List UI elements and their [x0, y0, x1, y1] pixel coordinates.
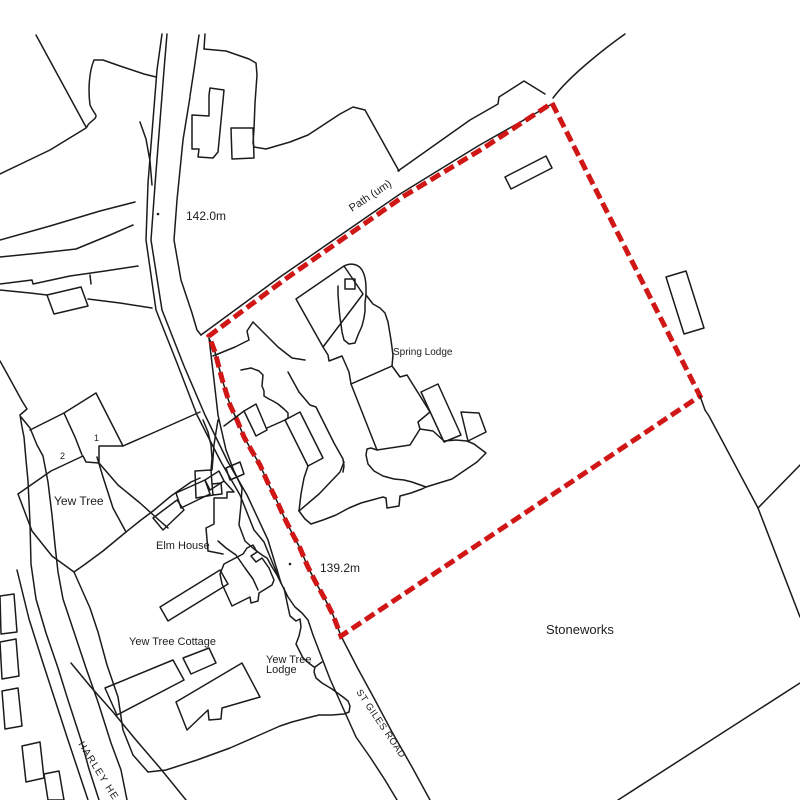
svg-text:1: 1 — [94, 433, 99, 443]
svg-text:ST GILES ROAD: ST GILES ROAD — [354, 688, 408, 761]
svg-text:142.0m: 142.0m — [186, 209, 226, 223]
svg-text:2: 2 — [60, 451, 65, 461]
svg-text:Lodge: Lodge — [266, 664, 297, 676]
svg-text:Stoneworks: Stoneworks — [546, 622, 614, 637]
svg-text:Elm House: Elm House — [156, 540, 210, 552]
svg-text:139.2m: 139.2m — [320, 561, 360, 575]
svg-text:Yew Tree: Yew Tree — [54, 494, 104, 508]
svg-text:Yew Tree Cottage: Yew Tree Cottage — [129, 636, 216, 648]
svg-text:Path (um): Path (um) — [347, 178, 394, 215]
svg-text:Spring Lodge: Spring Lodge — [393, 347, 453, 358]
